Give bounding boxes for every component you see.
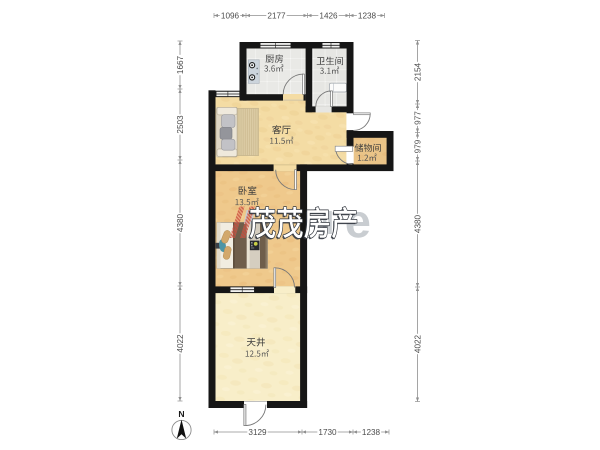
svg-text:4022: 4022 [413,334,422,353]
svg-text:3129: 3129 [248,428,267,437]
svg-text:1096: 1096 [221,11,240,20]
svg-text:1426: 1426 [319,11,338,20]
svg-text:1667: 1667 [176,55,185,74]
svg-text:N: N [178,409,184,419]
svg-text:2154: 2154 [413,62,422,81]
svg-text:979: 979 [413,139,422,153]
svg-text:1730: 1730 [318,428,337,437]
svg-text:2503: 2503 [176,115,185,134]
svg-text:2177: 2177 [267,11,286,20]
svg-text:1238: 1238 [358,11,377,20]
svg-text:4380: 4380 [176,213,185,232]
svg-text:977: 977 [413,111,422,125]
svg-text:1238: 1238 [362,428,381,437]
svg-text:4380: 4380 [413,214,422,233]
svg-text:4022: 4022 [176,334,185,353]
